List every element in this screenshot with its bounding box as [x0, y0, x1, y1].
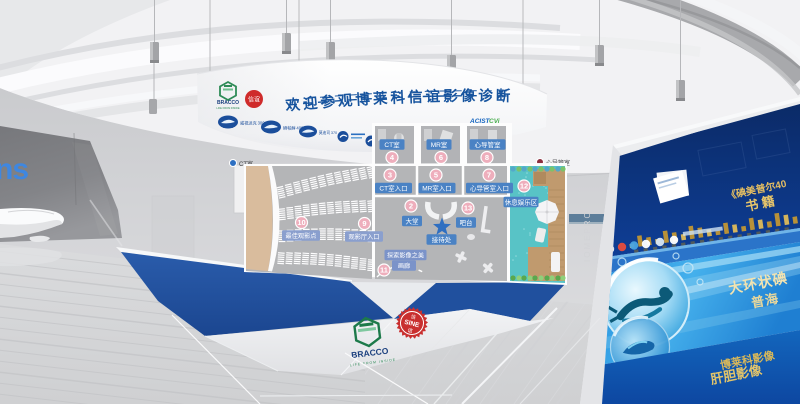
svg-text:接待处: 接待处 [432, 235, 452, 244]
svg-text:12: 12 [520, 182, 528, 191]
svg-text:休息娱乐区: 休息娱乐区 [505, 197, 538, 206]
svg-text:6: 6 [439, 153, 443, 162]
svg-text:信谊: 信谊 [248, 96, 260, 104]
svg-text:7: 7 [487, 171, 491, 180]
svg-text:2: 2 [409, 202, 413, 211]
svg-text:CT室: CT室 [384, 140, 400, 149]
svg-text:ns: ns [0, 153, 28, 186]
svg-text:画廊: 画廊 [398, 262, 410, 270]
svg-text:大堂: 大堂 [406, 216, 420, 225]
svg-text:MR室入口: MR室入口 [422, 183, 452, 192]
svg-text:11: 11 [380, 266, 388, 275]
svg-text:心导管室: 心导管室 [475, 140, 502, 149]
svg-text:CVi: CVi [489, 118, 500, 125]
svg-text:10: 10 [297, 218, 305, 227]
svg-text:3: 3 [388, 171, 392, 180]
svg-text:CT室入口: CT室入口 [379, 183, 407, 192]
svg-text:9: 9 [362, 219, 366, 228]
svg-text:吧台: 吧台 [460, 218, 473, 227]
svg-text:IOMEPRO: IOMEPRO [583, 210, 592, 262]
svg-text:ACIST: ACIST [469, 118, 491, 125]
svg-text:BRACCO: BRACCO [217, 100, 239, 106]
svg-text:8: 8 [485, 153, 489, 162]
svg-text:心导管室入口: 心导管室入口 [470, 183, 509, 192]
svg-text:LIFE FROM INSIDE: LIFE FROM INSIDE [216, 106, 239, 110]
svg-text:最佳观影点: 最佳观影点 [286, 232, 317, 240]
svg-text:探索影像之美: 探索影像之美 [387, 251, 424, 259]
svg-text:莫迪司 370: 莫迪司 370 [319, 130, 337, 135]
svg-text:MR室: MR室 [431, 140, 448, 149]
svg-text:13: 13 [464, 204, 472, 213]
svg-text:观影厅入口: 观影厅入口 [349, 233, 380, 241]
svg-text:5: 5 [434, 171, 438, 180]
